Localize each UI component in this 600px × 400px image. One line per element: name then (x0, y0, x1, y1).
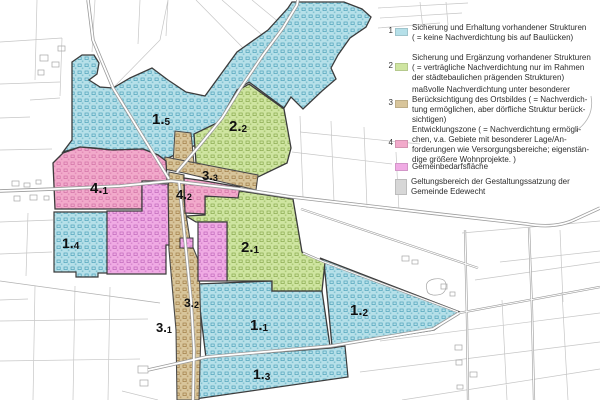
legend-swatch-zone1 (395, 28, 408, 36)
legend-swatch-zone4 (395, 140, 408, 148)
legend-item-number: 1 (382, 26, 395, 43)
gemeinbedarf-area-center (198, 222, 227, 281)
legend-item-number: 2 (382, 61, 395, 83)
legend-swatch-gemeinbedarf (395, 163, 408, 171)
legend-item-geltungsbereich: Geltungsbereich der Gestaltungssatzung d… (382, 177, 598, 197)
legend-item-2: 2 Sicherung und Ergänzung vorhandener St… (382, 53, 598, 83)
legend-item-number: 4 (382, 138, 395, 165)
legend-item-text: maßvolle Nachverdichtung unter besondere… (412, 85, 598, 125)
legend-item-number (382, 162, 395, 172)
legend-swatch-zone3 (395, 100, 408, 108)
legend-item-text: Sicherung und Ergänzung vorhandener Stru… (412, 53, 598, 83)
legend-swatch-geltungsbereich (395, 179, 407, 195)
legend: 1 Sicherung und Erhaltung vorhandener St… (382, 0, 598, 400)
legend-swatch-zone2 (395, 63, 408, 71)
legend-item-3: 3 maßvolle Nachverdichtung unter besonde… (382, 85, 598, 125)
legend-item-4: 4 Entwicklungszone ( = Nachverdichtung e… (382, 125, 598, 165)
zoning-map-page: 1.5 2.2 3.3 4.1 4.2 2.1 1.4 3.2 3.1 1.1 … (0, 0, 600, 400)
legend-item-text: Geltungsbereich der Gestaltungssatzung d… (411, 177, 598, 197)
legend-item-1: 1 Sicherung und Erhaltung vorhandener St… (382, 23, 598, 43)
legend-item-text: Entwicklungszone ( = Nachverdichtung erm… (412, 125, 598, 165)
legend-item-gemeinbedarf: Gemeinbedarfsfläche (382, 162, 598, 172)
legend-item-number (382, 177, 395, 197)
legend-item-number: 3 (382, 98, 395, 125)
legend-item-text: Sicherung und Erhaltung vorhandener Stru… (412, 23, 598, 43)
legend-item-text: Gemeinbedarfsfläche (412, 162, 598, 172)
